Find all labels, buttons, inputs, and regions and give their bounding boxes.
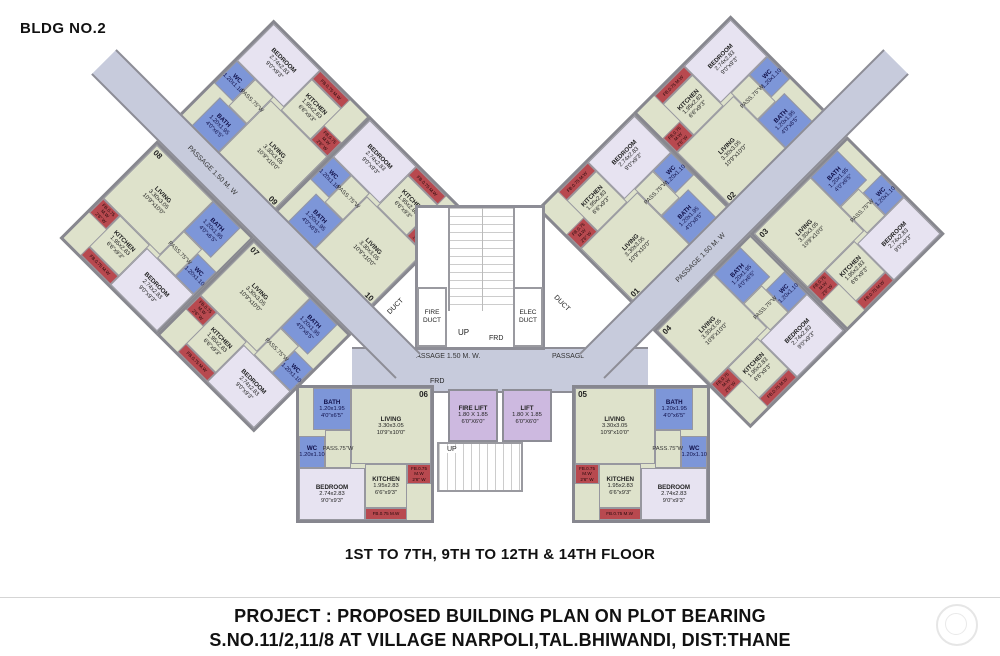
frd-label: FRD <box>430 378 444 385</box>
bedroom-label: BEDROOM 2.74x2.83 9'0"x9'3" <box>133 271 170 308</box>
kitchen-label: KITCHEN 1.95x2.83 6'6"x9'3" <box>741 351 775 385</box>
wc-label: WC 1.20x1.10 <box>299 445 324 459</box>
flower-bed: FB.0.75 M.W 2'6" W <box>575 464 599 484</box>
fire-lift-label: FIRE LIFT 1.80 X 1.85 6'0"X6'0" <box>458 405 488 425</box>
living-label: LIVING 3.30x3.05 10'9"x10'0" <box>715 134 750 169</box>
bath-label: BATH 1.20x1.95 4'0"x6'5" <box>726 259 758 291</box>
pass-label: PASS.75"W <box>740 84 766 110</box>
fire-duct-label: FIRE DUCT <box>419 309 445 325</box>
lift-label: LIFT 1.80 X 1.85 6'0"X6'0" <box>512 405 542 425</box>
living-label: LIVING 3.30x3.05 10'9"x10'0" <box>141 183 176 218</box>
bath-label: BATH 1.20x1.95 4'0"x6'5" <box>202 109 234 141</box>
pass-label: PASS.75"W <box>850 198 876 224</box>
living-label: LIVING 3.30x3.05 10'9"x10'0" <box>792 215 827 250</box>
kitchen-room: KITCHEN 1.95x2.83 6'6"x9'3" <box>365 464 407 508</box>
flower-bed: FB.0.75 M.W <box>365 508 407 520</box>
flower-bed-label: FB.0.75 M.W 2'6" W <box>408 466 430 482</box>
bath-room: BATH 1.20x1.95 4'0"x6'5" <box>313 388 351 430</box>
bedroom-label: BEDROOM 2.74x2.83 9'0"x9'3" <box>783 317 820 354</box>
kitchen-room: KITCHEN 1.95x2.83 6'6"x9'3" <box>599 464 641 508</box>
pass-label: PASS.75"W <box>644 180 670 206</box>
bedroom-room: BEDROOM 2.74x2.83 9'0"x9'3" <box>299 468 365 520</box>
bedroom-room: BEDROOM 2.74x2.83 9'0"x9'3" <box>641 468 707 520</box>
floors-caption: 1ST TO 7TH, 9TH TO 12TH & 14TH FLOOR <box>0 546 1000 563</box>
passage-label: PASSAGE 1.50 M. W. <box>412 353 480 360</box>
bedroom-label: BEDROOM 2.74x2.83 9'0"x9'3" <box>316 484 348 504</box>
living-label: LIVING 3.30x3.05 10'9"x10'0" <box>377 416 406 436</box>
living-label: LIVING 3.30x3.05 10'9"x10'0" <box>619 230 654 265</box>
living-label: LIVING 3.30x3.05 10'9"x10'0" <box>238 279 273 314</box>
bath-label: BATH 1.20x1.95 4'0"x6'5" <box>293 310 325 342</box>
unit-06: LIVING 3.30x3.05 10'9"x10'0" BATH 1.20x1… <box>296 385 434 523</box>
kitchen-label: KITCHEN 1.95x2.83 6'6"x9'3" <box>838 254 872 288</box>
fire-lift: FIRE LIFT 1.80 X 1.85 6'0"X6'0" <box>448 389 498 442</box>
lift-block: FIRE LIFT 1.80 X 1.85 6'0"X6'0" LIFT 1.8… <box>448 389 552 442</box>
project-line1: PROJECT : PROPOSED BUILDING PLAN ON PLOT… <box>0 604 1000 628</box>
kitchen-label: KITCHEN 1.95x2.83 6'6"x9'3" <box>606 476 634 496</box>
living-room: LIVING 3.30x3.05 10'9"x10'0" <box>575 388 655 464</box>
bath-label: BATH 1.20x1.95 4'0"x6'5" <box>823 162 855 194</box>
right-wing: LIVING 3.30x3.05 10'9"x10'0" BATH 1.20x1… <box>486 0 1000 472</box>
living-label: LIVING 3.30x3.05 10'9"x10'0" <box>351 234 386 269</box>
kitchen-label: KITCHEN 1.95x2.83 6'6"x9'3" <box>676 88 710 122</box>
unit-number: 05 <box>578 390 587 399</box>
frd-label: FRD <box>489 335 503 342</box>
bedroom-label: BEDROOM 2.74x2.83 9'0"x9'3" <box>880 220 917 257</box>
project-line2: S.NO.11/2,11/8 AT VILLAGE NARPOLI,TAL.BH… <box>0 628 1000 652</box>
living-room: LIVING 3.30x3.05 10'9"x10'0" <box>351 388 431 464</box>
bedroom-label: BEDROOM 2.74x2.83 9'0"x9'3" <box>356 143 393 180</box>
bedroom-label: BEDROOM 2.74x2.83 9'0"x9'3" <box>611 139 648 176</box>
kitchen-label: KITCHEN 1.95x2.83 6'6"x9'3" <box>103 229 137 263</box>
fire-duct: FIRE DUCT <box>417 287 447 347</box>
flower-bed-label: FB.0.75 M.W <box>607 511 634 516</box>
bedroom-label: BEDROOM 2.74x2.83 9'0"x9'3" <box>658 484 690 504</box>
bath-label: BATH 1.20x1.95 4'0"x6'5" <box>196 213 228 245</box>
pass-label: PASS.75"W <box>334 185 360 211</box>
living-label: LIVING 3.30x3.05 10'9"x10'0" <box>695 312 730 347</box>
wc-label: WC 1.20x1.10 <box>681 445 706 459</box>
kitchen-label: KITCHEN 1.95x2.83 6'6"x9'3" <box>294 92 328 126</box>
wc-room: WC 1.20x1.10 <box>299 436 325 468</box>
floor-plan: BLDG NO.2 PASSAGE 1.50 M. W. PASSAGE 1.5… <box>0 0 1000 656</box>
pass-label: PASS.75"W <box>323 446 354 453</box>
bedroom-label: BEDROOM 2.74x2.83 9'0"x9'3" <box>230 368 267 405</box>
living-label: LIVING 3.30x3.05 10'9"x10'0" <box>601 416 630 436</box>
pass-label: PASS.75"W <box>263 337 289 363</box>
bedroom-label: BEDROOM 2.74x2.83 9'0"x9'3" <box>707 43 744 80</box>
flower-bed-label: FB.0.75 M.W 2'6" W <box>576 466 598 482</box>
pass-label: PASS.75"W <box>166 240 192 266</box>
kitchen-label: KITCHEN 1.95x2.83 6'6"x9'3" <box>580 184 614 218</box>
stair-core: FIRE DUCT ELEC DUCT UP <box>415 205 545 350</box>
project-footer: PROJECT : PROPOSED BUILDING PLAN ON PLOT… <box>0 597 1000 653</box>
flower-bed: FB.0.75 M.W <box>599 508 641 520</box>
bath-label: BATH 1.20x1.95 4'0"x6'5" <box>770 105 802 137</box>
bath-label: BATH 1.20x1.95 4'0"x6'5" <box>661 399 686 419</box>
watermark-logo <box>936 604 978 646</box>
unit-number: 06 <box>419 390 428 399</box>
pass-strip: PASS.75"W <box>325 430 351 468</box>
flower-bed: FB.0.75 M.W 2'6" W <box>407 464 431 484</box>
elec-duct: ELEC DUCT <box>513 287 543 347</box>
pass-label: PASS.75"W <box>238 88 264 114</box>
bedroom-label: BEDROOM 2.74x2.83 9'0"x9'3" <box>260 47 297 84</box>
building-title: BLDG NO.2 <box>20 20 106 37</box>
bath-label: BATH 1.20x1.95 4'0"x6'5" <box>319 399 344 419</box>
kitchen-label: KITCHEN 1.95x2.83 6'6"x9'3" <box>372 476 400 496</box>
elec-duct-label: ELEC DUCT <box>515 309 541 325</box>
flower-bed-label: FB.0.75 M.W <box>373 511 400 516</box>
kitchen-label: KITCHEN 1.95x2.83 6'6"x9'3" <box>199 326 233 360</box>
bath-label: BATH 1.20x1.95 4'0"x6'5" <box>298 206 330 238</box>
unit-05: LIVING 3.30x3.05 10'9"x10'0" BATH 1.20x1… <box>572 385 710 523</box>
bath-label: BATH 1.20x1.95 4'0"x6'5" <box>673 201 705 233</box>
bath-room: BATH 1.20x1.95 4'0"x6'5" <box>655 388 693 430</box>
living-label: LIVING 3.30x3.05 10'9"x10'0" <box>255 138 290 173</box>
up-label: UP <box>458 328 469 337</box>
pass-label: PASS.75"W <box>753 295 779 321</box>
pass-strip: PASS.75"W <box>655 430 681 468</box>
up-label: UP <box>446 446 458 453</box>
wc-room: WC 1.20x1.10 <box>681 436 707 468</box>
lift: LIFT 1.80 X 1.85 6'0"X6'0" <box>502 389 552 442</box>
pass-label: PASS.75"W <box>653 446 684 453</box>
staircase <box>448 208 515 311</box>
